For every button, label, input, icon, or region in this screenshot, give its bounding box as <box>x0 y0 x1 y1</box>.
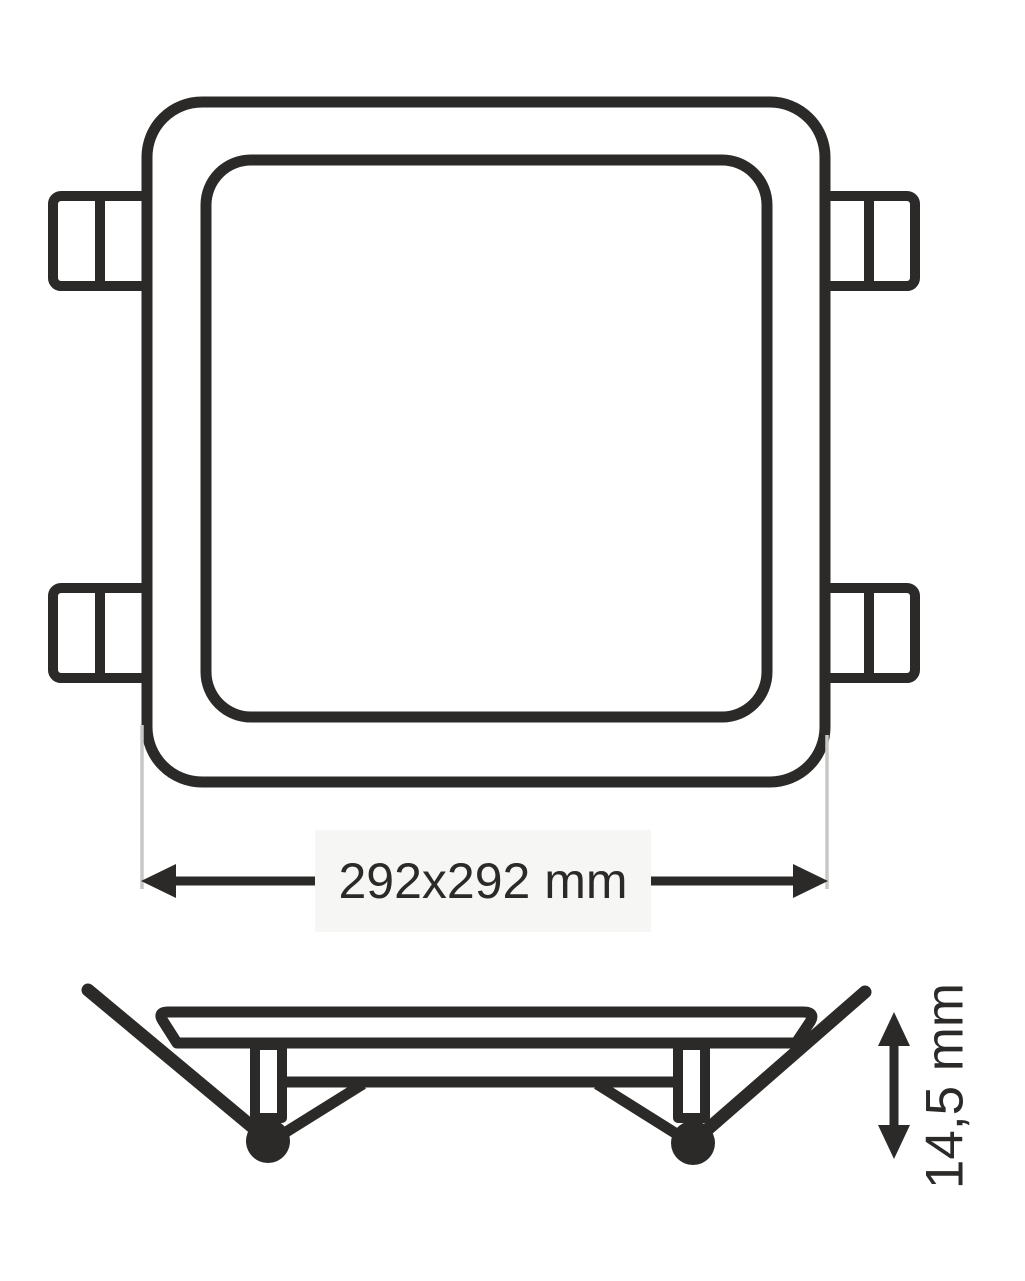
technical-drawing-page: 292x292 mm 14,5 mm <box>0 0 1025 1281</box>
height-dimension-label: 14,5 mm <box>916 983 975 1189</box>
panel-dimension-drawing: 292x292 mm 14,5 mm <box>0 0 1025 1281</box>
arrow-head-up-icon <box>878 1012 910 1046</box>
panel-inner-surface <box>206 160 767 717</box>
height-dimension: 14,5 mm <box>878 983 975 1189</box>
side-view <box>88 990 865 1165</box>
arrow-head-right-icon <box>793 864 828 898</box>
width-dimension-label: 292x292 mm <box>338 853 627 909</box>
panel-profile <box>161 1012 812 1043</box>
pivot-ball-right <box>671 1121 715 1165</box>
pivot-ball-left <box>246 1119 290 1163</box>
arrow-head-down-icon <box>878 1125 910 1159</box>
clip-post-left <box>255 1045 282 1118</box>
arrow-head-left-icon <box>141 864 176 898</box>
top-view <box>53 102 915 782</box>
clip-post-right <box>678 1045 705 1118</box>
